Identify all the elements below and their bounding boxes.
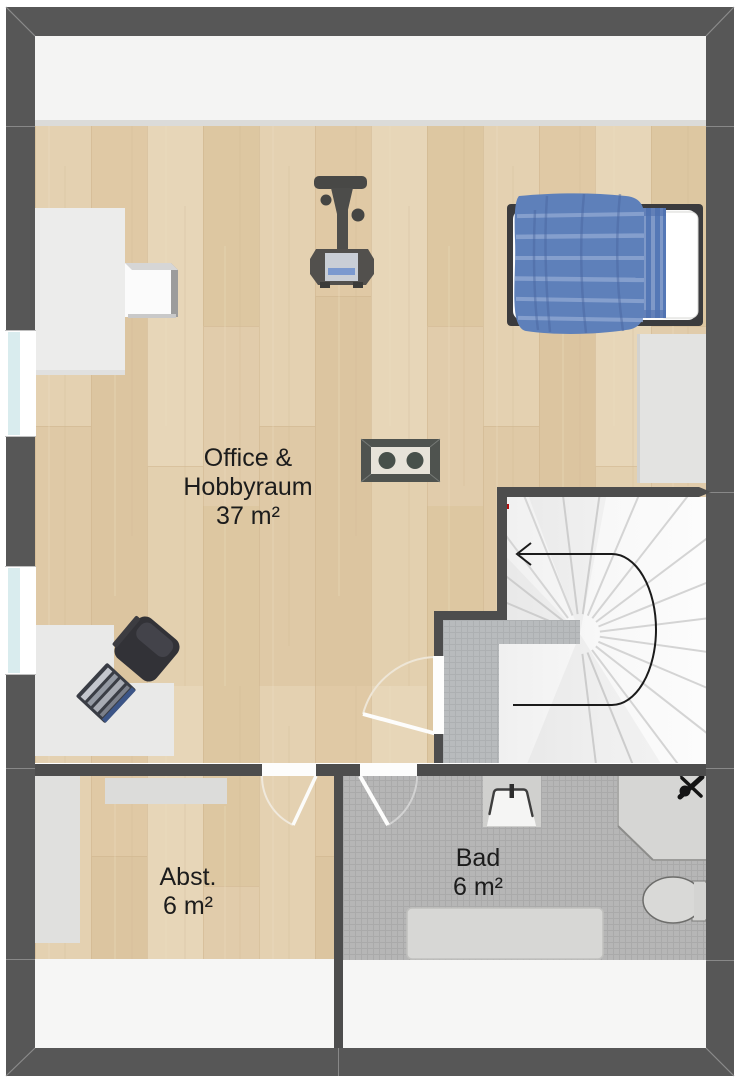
svg-text:37 m²: 37 m² [216,502,280,530]
svg-text:Office &: Office & [204,444,293,472]
svg-text:6 m²: 6 m² [453,873,503,901]
svg-text:6 m²: 6 m² [163,892,213,920]
svg-text:Hobbyraum: Hobbyraum [183,473,312,501]
svg-text:Bad: Bad [456,844,500,872]
svg-text:Abst.: Abst. [160,863,217,891]
